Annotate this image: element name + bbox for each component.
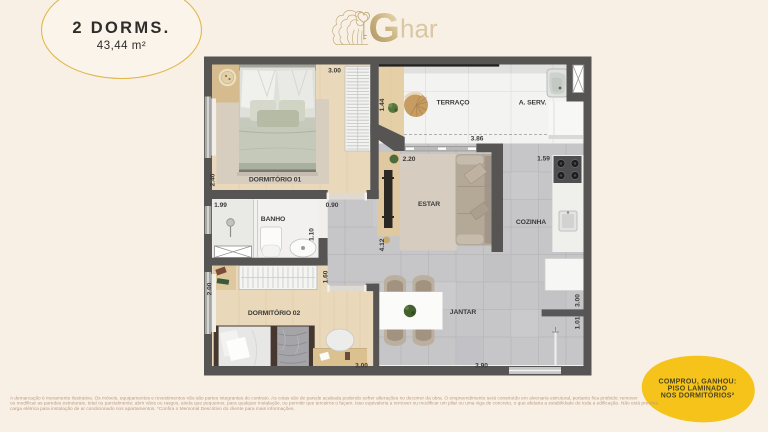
svg-text:3.00: 3.00 <box>328 68 341 75</box>
svg-text:0.90: 0.90 <box>326 202 339 209</box>
svg-text:2 DORMS.: 2 DORMS. <box>72 19 170 37</box>
svg-text:ESTAR: ESTAR <box>418 201 440 208</box>
svg-text:NOS DORMITÓRIOS²: NOS DORMITÓRIOS² <box>661 391 735 400</box>
svg-text:3.00: 3.00 <box>355 363 368 370</box>
svg-text:3.00: 3.00 <box>575 294 582 307</box>
svg-text:ou modificar as paredes estrut: ou modificar as paredes estruturais, tot… <box>10 401 659 407</box>
svg-text:BANHO: BANHO <box>261 216 285 223</box>
svg-text:1.60: 1.60 <box>323 270 330 283</box>
svg-text:4.12: 4.12 <box>379 238 386 251</box>
svg-text:1.44: 1.44 <box>379 98 386 111</box>
svg-text:carga elétrica para instalação: carga elétrica para instalação de ar con… <box>10 406 295 412</box>
svg-text:COZINHA: COZINHA <box>516 219 546 226</box>
svg-text:A. SERV.: A. SERV. <box>519 100 547 107</box>
svg-text:COMPROU, GANHOU:: COMPROU, GANHOU: <box>659 379 737 386</box>
svg-text:TERRAÇO: TERRAÇO <box>437 100 470 107</box>
svg-text:1.59: 1.59 <box>537 156 550 163</box>
svg-text:A demarcação é meramente ilust: A demarcação é meramente ilustrativa. Os… <box>10 395 638 401</box>
svg-text:1.99: 1.99 <box>214 202 227 209</box>
svg-text:2.40: 2.40 <box>210 173 217 186</box>
svg-text:3.86: 3.86 <box>471 136 484 143</box>
svg-text:3.90: 3.90 <box>475 362 488 369</box>
svg-text:JANTAR: JANTAR <box>450 309 477 316</box>
svg-text:DORMITÓRIO 02: DORMITÓRIO 02 <box>248 308 301 317</box>
svg-text:G: G <box>369 5 401 51</box>
svg-text:43,44 m²: 43,44 m² <box>97 40 146 52</box>
svg-text:2.00: 2.00 <box>207 282 214 295</box>
svg-text:1.10: 1.10 <box>309 228 316 241</box>
svg-text:DORMITÓRIO 01: DORMITÓRIO 01 <box>249 175 302 184</box>
svg-text:1.01: 1.01 <box>575 316 582 329</box>
svg-text:PISO LAMINADO: PISO LAMINADO <box>668 386 728 393</box>
svg-text:2.20: 2.20 <box>403 156 416 163</box>
svg-text:har: har <box>400 14 438 44</box>
